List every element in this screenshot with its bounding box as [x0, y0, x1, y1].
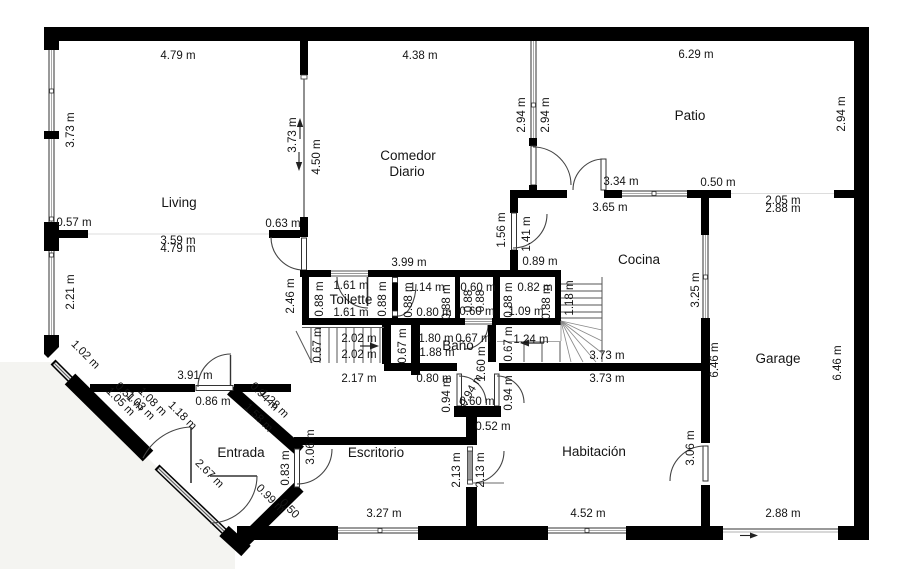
svg-text:3.91 m: 3.91 m [177, 370, 212, 382]
svg-text:1.18 m: 1.18 m [564, 280, 576, 315]
svg-text:Living: Living [161, 195, 196, 210]
svg-text:0.88 m: 0.88 m [441, 284, 453, 319]
svg-text:3.73 m: 3.73 m [589, 373, 624, 385]
svg-text:Cocina: Cocina [618, 252, 661, 267]
svg-text:0.57 m: 0.57 m [56, 217, 91, 229]
svg-text:0.88 m: 0.88 m [541, 284, 553, 319]
svg-text:Patio: Patio [675, 108, 706, 123]
svg-text:3.65 m: 3.65 m [592, 202, 627, 214]
svg-text:1.61 m: 1.61 m [333, 307, 368, 319]
svg-text:Comedor: Comedor [380, 148, 436, 163]
svg-text:Toilette: Toilette [330, 292, 373, 307]
svg-text:Garage: Garage [755, 351, 800, 366]
svg-text:6.46 m: 6.46 m [709, 342, 721, 377]
svg-text:0.67 m: 0.67 m [312, 327, 324, 362]
svg-text:2.13 m: 2.13 m [475, 452, 487, 487]
svg-text:0.63 m: 0.63 m [265, 218, 300, 230]
svg-text:0.67 m: 0.67 m [397, 328, 409, 363]
svg-text:3.73 m: 3.73 m [65, 112, 77, 147]
svg-text:2.94 m: 2.94 m [836, 96, 848, 131]
svg-text:4.79 m: 4.79 m [160, 50, 195, 62]
svg-text:0.88 m: 0.88 m [377, 281, 389, 316]
svg-text:4.79 m: 4.79 m [160, 243, 195, 255]
svg-text:3.73 m: 3.73 m [287, 117, 299, 152]
svg-text:3.99 m: 3.99 m [391, 257, 426, 269]
svg-text:2.94 m: 2.94 m [540, 97, 552, 132]
svg-text:3.73 m: 3.73 m [589, 350, 624, 362]
svg-text:0.86 m: 0.86 m [195, 396, 230, 408]
svg-text:0.88 m: 0.88 m [403, 282, 415, 317]
svg-text:2.46 m: 2.46 m [285, 278, 297, 313]
svg-text:3.06 m: 3.06 m [685, 430, 697, 465]
svg-text:1.24 m: 1.24 m [513, 334, 548, 346]
svg-text:0.88 m: 0.88 m [503, 282, 515, 317]
svg-text:2.88 m: 2.88 m [765, 203, 800, 215]
svg-text:0.88: 0.88 [475, 290, 487, 312]
svg-text:0.83 m: 0.83 m [280, 450, 292, 485]
svg-text:2.02 m: 2.02 m [341, 349, 376, 361]
svg-text:0.88: 0.88 [463, 290, 475, 312]
svg-text:Diario: Diario [389, 164, 424, 179]
svg-text:0.89 m: 0.89 m [522, 256, 557, 268]
svg-text:2.02 m: 2.02 m [341, 333, 376, 345]
svg-text:0.94 m: 0.94 m [503, 375, 515, 410]
svg-text:4.52 m: 4.52 m [570, 508, 605, 520]
svg-text:2.13 m: 2.13 m [451, 452, 463, 487]
svg-text:Escritorio: Escritorio [348, 445, 404, 460]
svg-text:3.27 m: 3.27 m [366, 508, 401, 520]
svg-text:4.38 m: 4.38 m [402, 50, 437, 62]
svg-text:Habitación: Habitación [562, 444, 626, 459]
svg-text:1.61 m: 1.61 m [333, 280, 368, 292]
svg-text:2.21 m: 2.21 m [65, 274, 77, 309]
svg-text:3.34 m: 3.34 m [603, 176, 638, 188]
svg-text:2.88 m: 2.88 m [765, 508, 800, 520]
svg-text:0.50 m: 0.50 m [700, 177, 735, 189]
svg-text:4.50 m: 4.50 m [311, 139, 323, 174]
svg-text:6.29 m: 6.29 m [678, 49, 713, 61]
svg-text:6.46 m: 6.46 m [832, 345, 844, 380]
svg-text:0.88 m: 0.88 m [314, 281, 326, 316]
svg-text:2.94 m: 2.94 m [516, 97, 528, 132]
svg-text:3.25 m: 3.25 m [690, 272, 702, 307]
svg-text:0.94 m: 0.94 m [441, 377, 453, 412]
svg-text:2.17 m: 2.17 m [341, 373, 376, 385]
svg-text:3.06 m: 3.06 m [305, 429, 317, 464]
svg-text:1.56 m: 1.56 m [496, 212, 508, 247]
svg-text:1.88 m: 1.88 m [419, 347, 454, 359]
svg-text:0.60 m: 0.60 m [459, 396, 494, 408]
svg-text:0.52 m: 0.52 m [475, 421, 510, 433]
svg-text:1.41 m: 1.41 m [521, 216, 533, 251]
svg-text:Entrada: Entrada [217, 445, 265, 460]
